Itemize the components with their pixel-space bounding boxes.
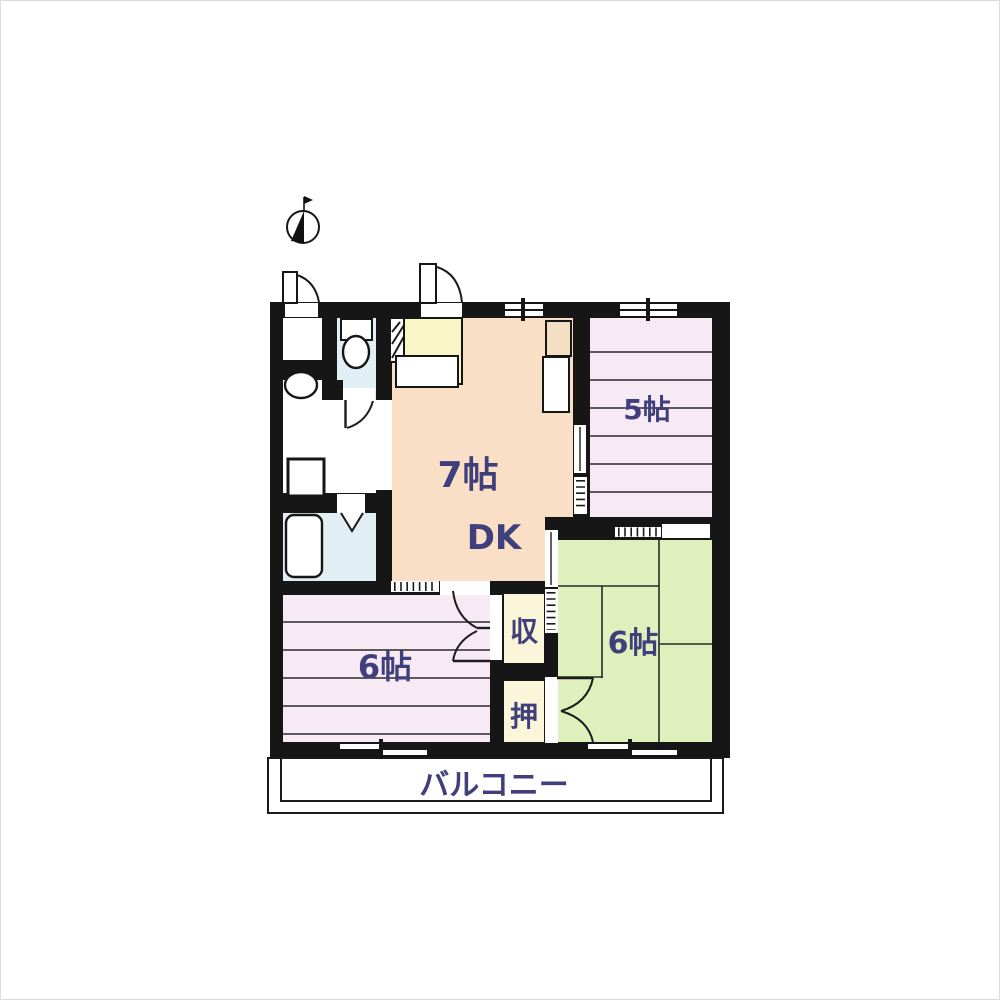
slider-east-meeting bbox=[628, 739, 632, 759]
kitchen-door-leaf bbox=[420, 264, 436, 303]
floor-plan-page: 7帖 DK 5帖 6帖 6帖 収 押 バルコニー bbox=[0, 0, 1000, 1000]
toilet-threshold bbox=[343, 388, 375, 400]
label-6jo-west: 6帖 bbox=[358, 648, 412, 686]
washbasin bbox=[285, 372, 317, 398]
floor-plan-svg: 7帖 DK 5帖 6帖 6帖 収 押 バルコニー bbox=[0, 0, 1000, 1000]
washing-machine bbox=[288, 459, 324, 496]
window-5jo-mullion bbox=[646, 298, 650, 321]
wall-toilet-jamb bbox=[322, 380, 343, 400]
oshiire-door-opening bbox=[545, 677, 558, 743]
label-closet-oshiire: 押 bbox=[510, 700, 538, 733]
slider-west-leaf1 bbox=[340, 744, 383, 749]
toilet-bowl bbox=[343, 336, 369, 368]
label-dk-type: DK bbox=[467, 518, 523, 558]
wall-washroom-dk-lower bbox=[376, 490, 392, 595]
slider-west-meeting bbox=[379, 739, 383, 759]
label-dk-size: 7帖 bbox=[437, 455, 498, 496]
bath-door-opening bbox=[337, 494, 365, 513]
entrance-door-leaf bbox=[283, 272, 297, 303]
slider-west-leaf2 bbox=[381, 750, 427, 755]
appliance-box bbox=[546, 321, 571, 356]
kitchen-door-threshold bbox=[421, 303, 462, 317]
dk-bedroom-door-opening bbox=[440, 581, 490, 595]
5jo-tatami-opening bbox=[662, 524, 710, 538]
slider-east-leaf1 bbox=[588, 744, 632, 749]
dk-5jo-serration-bg bbox=[574, 477, 587, 514]
wall-closet-mid bbox=[503, 664, 545, 680]
wall-right bbox=[712, 302, 730, 758]
refrigerator-space bbox=[543, 357, 569, 412]
window-dk-mullion bbox=[521, 298, 525, 321]
bathtub bbox=[286, 515, 322, 577]
label-5jo: 5帖 bbox=[623, 393, 670, 426]
label-closet-storage: 収 bbox=[510, 615, 539, 648]
kitchen-sink bbox=[396, 356, 458, 387]
label-balcony: バルコニー bbox=[419, 768, 568, 803]
washroom-dk-opening bbox=[376, 400, 392, 490]
entrance-threshold bbox=[285, 303, 318, 317]
slider-east-leaf2 bbox=[630, 750, 677, 755]
wall-left bbox=[270, 302, 283, 758]
label-6jo-tatami: 6帖 bbox=[608, 626, 659, 661]
wall-closet-west bbox=[490, 660, 503, 747]
